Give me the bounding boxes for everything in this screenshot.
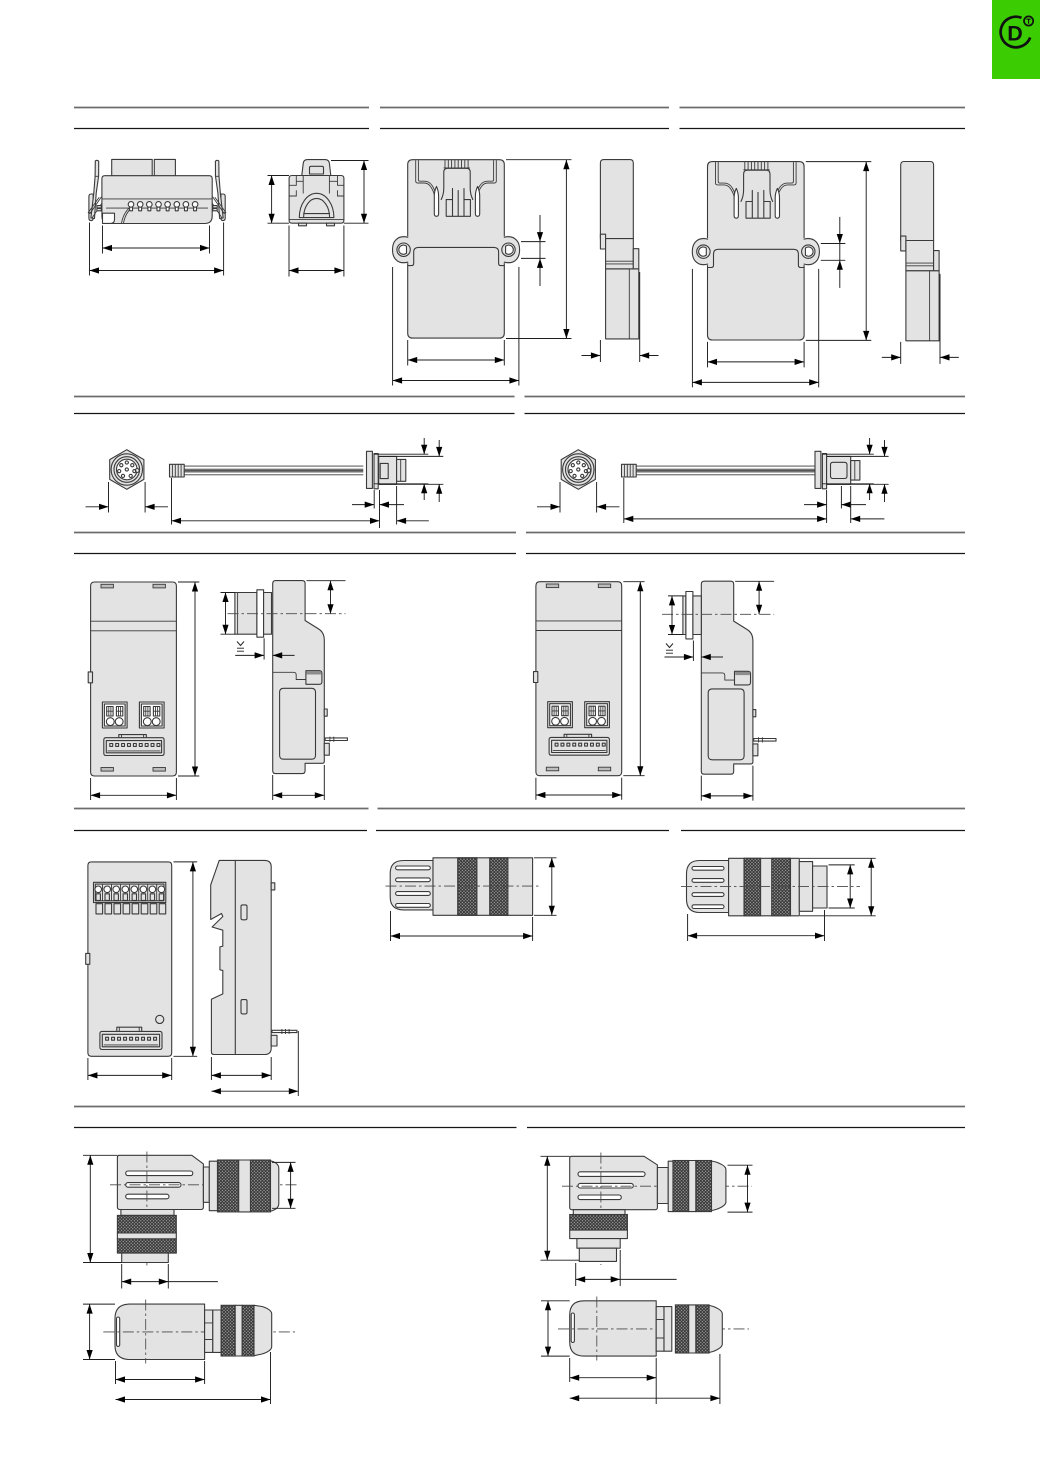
svg-text:D: D <box>1007 22 1023 46</box>
